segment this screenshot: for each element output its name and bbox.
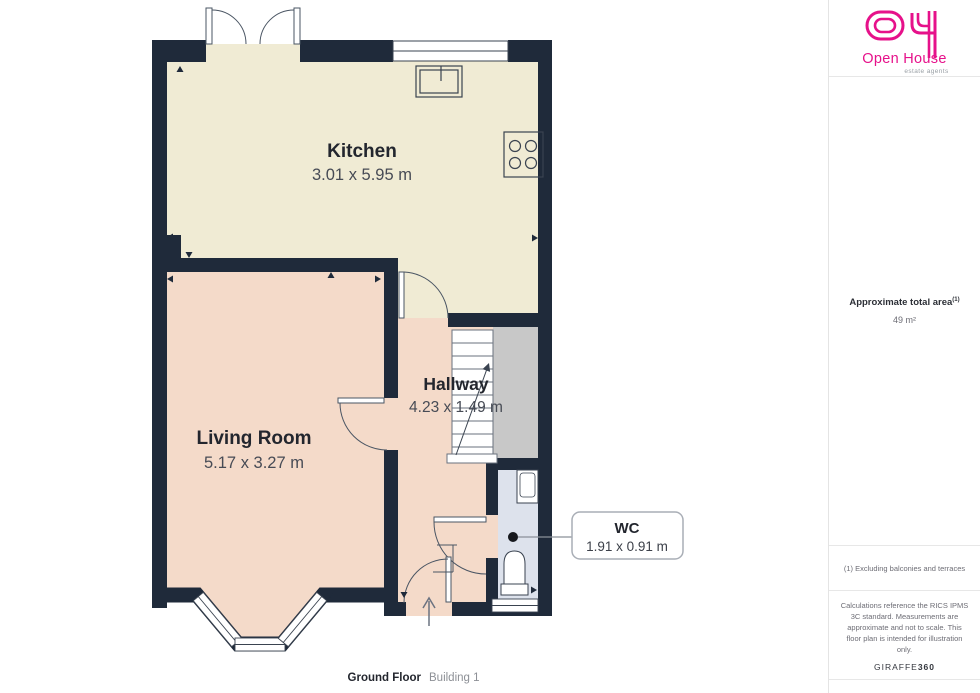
brand-logo: Open House estate agents — [829, 6, 980, 75]
french-door-threshold — [206, 44, 300, 62]
wc-label: WC — [615, 520, 640, 537]
disclaimer-text: Calculations reference the RICS IPMS 3C … — [840, 601, 969, 655]
floorplan-drawing: WC 1.91 x 0.91 m Kitchen 3.01 x 5.95 m L… — [0, 0, 828, 693]
building-label: Building 1 — [429, 672, 480, 684]
floorplan-page: { "plan": { "rooms": [ {"name": "Kitchen… — [0, 0, 980, 693]
kitchen-window — [393, 41, 508, 61]
wall-opening-lr — [384, 398, 398, 450]
living-room-dims: 5.17 x 3.27 m — [204, 454, 304, 472]
info-sidebar: Open House estate agents Approximate tot… — [828, 0, 980, 693]
toilet-icon — [501, 551, 528, 595]
brand-name: Open House — [829, 51, 980, 67]
kitchen-label: Kitchen — [327, 141, 397, 162]
hallway-label: Hallway — [423, 374, 488, 394]
hallway-floor — [398, 318, 448, 608]
brand-tagline: estate agents — [829, 68, 980, 75]
logo-section: Open House estate agents — [829, 0, 980, 77]
wc-dims: 1.91 x 0.91 m — [586, 539, 668, 554]
giraffe360-credit: GIRAFFE360 — [840, 662, 969, 672]
area-value: 49 m² — [893, 315, 916, 325]
basin-icon — [517, 470, 538, 503]
plan-footer: Ground Floor Building 1 — [348, 672, 480, 684]
footnote-text: (1) Excluding balconies and terraces — [844, 564, 965, 573]
footnote-section: (1) Excluding balconies and terraces — [829, 546, 980, 591]
wc-window — [492, 599, 538, 612]
disclaimer-section: Calculations reference the RICS IPMS 3C … — [829, 591, 980, 680]
hallway-dims: 4.23 x 1.49 m — [409, 399, 503, 416]
kitchen-dims: 3.01 x 5.95 m — [312, 166, 412, 184]
floor-label: Ground Floor — [348, 672, 422, 684]
wc-callout-dot — [508, 532, 518, 542]
area-title: Approximate total area(1) — [849, 297, 959, 308]
wall-opening-wc — [486, 515, 498, 558]
area-footnote-marker: (1) — [952, 297, 959, 303]
living-room-label: Living Room — [196, 428, 311, 449]
french-doors — [206, 8, 300, 44]
stairs-landing — [493, 327, 538, 458]
area-section: Approximate total area(1) 49 m² — [829, 77, 980, 546]
bay-window-front — [235, 638, 285, 651]
stairs — [447, 330, 497, 463]
